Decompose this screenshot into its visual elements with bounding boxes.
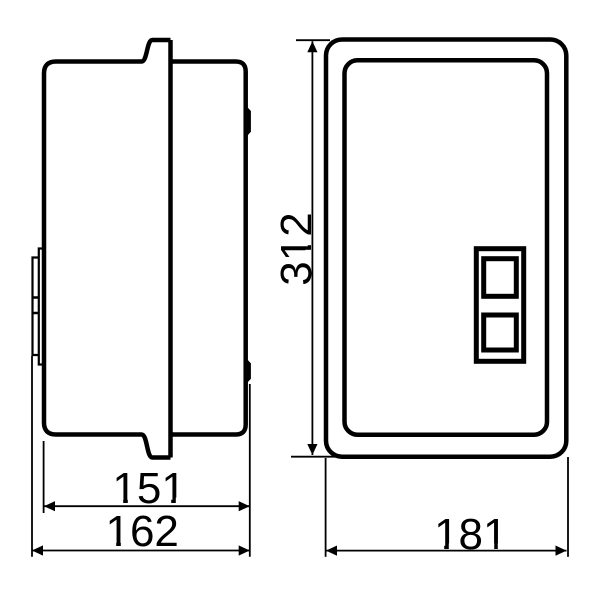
- svg-text:151: 151: [112, 464, 185, 513]
- svg-text:162: 162: [105, 507, 178, 556]
- svg-text:181: 181: [434, 510, 507, 559]
- svg-text:312: 312: [272, 212, 321, 285]
